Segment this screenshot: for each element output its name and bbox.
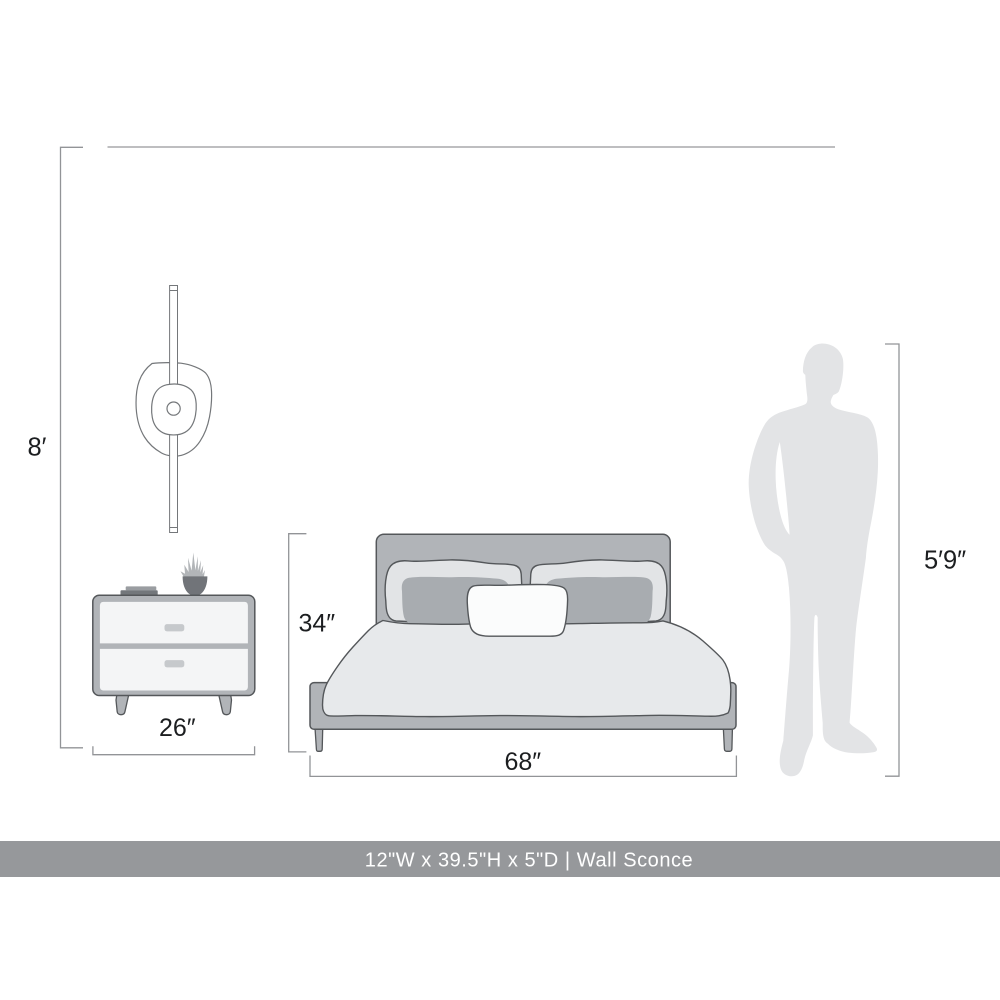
- svg-text:26″: 26″: [159, 714, 196, 742]
- svg-text:12"W x 39.5"H x 5"D | Wall Sco: 12"W x 39.5"H x 5"D | Wall Sconce: [365, 850, 693, 872]
- svg-text:8′: 8′: [28, 434, 47, 462]
- svg-text:5′9″: 5′9″: [924, 546, 966, 574]
- svg-text:34″: 34″: [299, 609, 336, 637]
- svg-text:68″: 68″: [505, 748, 542, 776]
